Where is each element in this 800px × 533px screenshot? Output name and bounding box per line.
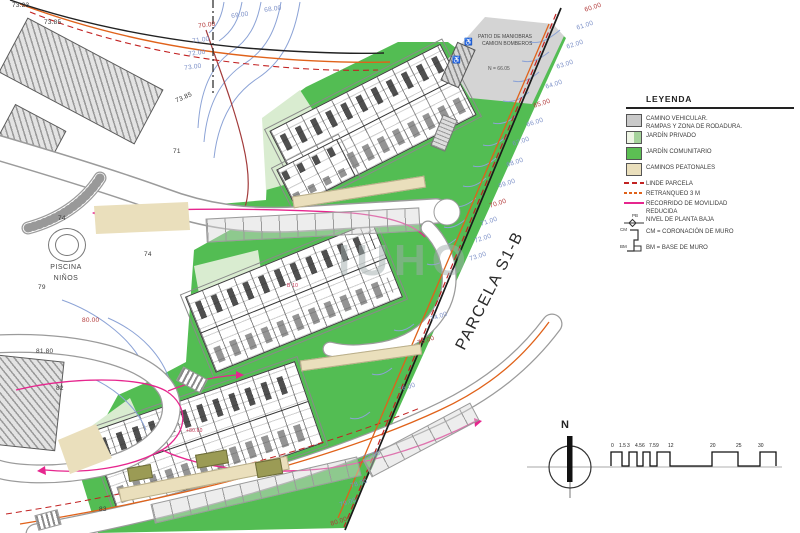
pool-label-line1: PISCINA <box>50 264 82 271</box>
legend-label: CAMINO VEHICULAR. <box>646 116 708 122</box>
scale-tick-label: 20 <box>710 444 716 449</box>
scale-tick-label: 12 <box>668 444 674 449</box>
pool-label: PISCINA NIÑOS <box>38 262 94 284</box>
contour-lines-major <box>206 30 248 218</box>
map-label: 64.00 <box>545 80 563 92</box>
wheelchair-icon: ♿ <box>464 38 473 46</box>
linde-line-swatch <box>624 182 644 184</box>
patio-label-line2: CAMION BOMBEROS <box>482 41 532 47</box>
legend-label: BM = BASE DE MURO <box>646 245 708 251</box>
scale-tick-label: 9 <box>656 444 659 449</box>
map-label: 71 <box>173 149 181 156</box>
children-pool-inner <box>55 234 79 256</box>
site-plan-canvas: ♿ ♿ IUHO PISCINA NIÑOS PARCELA S1-B PATI… <box>0 0 800 533</box>
scale-tick-label: 30 <box>758 444 764 449</box>
watermark: IUHO <box>338 236 472 286</box>
legend-label: RETRANQUEO 3 M <box>646 190 700 198</box>
legend-title: LEYENDA <box>646 94 692 104</box>
existing-building-topleft-wing <box>0 104 66 168</box>
road-swatch <box>626 114 642 127</box>
legend-label: REDUCIDA <box>646 209 677 215</box>
bm-symbol-label: BM <box>620 244 627 249</box>
north-label: N <box>561 419 569 431</box>
scale-tick-label: 4.5 <box>635 444 642 449</box>
crosswalk <box>34 509 61 531</box>
map-label: 72.00 <box>188 50 206 59</box>
compass <box>527 436 613 498</box>
legend-label: RECORRIDO DE MOVILIDAD <box>646 201 727 207</box>
cm-symbol-label: CM <box>620 227 627 232</box>
legend-label: LINDE PARCELA <box>646 180 693 188</box>
legend-rule <box>626 107 794 109</box>
patio-level-label: N = 66.05 <box>488 66 510 72</box>
existing-building-bottomleft <box>0 355 65 451</box>
legend-label: CAMINOS PEATONALES <box>646 164 715 172</box>
map-label: 73.85 <box>44 20 61 27</box>
wheelchair-icon: ♿ <box>452 56 461 64</box>
scale-tick-label: 7.5 <box>649 444 656 449</box>
scale-bar <box>611 452 782 467</box>
scale-tick-label: 0 <box>611 444 614 449</box>
retranqueo-line-swatch <box>624 192 644 194</box>
map-label: 70.00 <box>198 22 216 31</box>
scale-tick-label: 25 <box>736 444 742 449</box>
patio-label-line1: PATIO DE MANIOBRAS <box>478 34 532 40</box>
map-label: 74 <box>58 216 66 223</box>
legend-label: JARDÍN PRIVADO <box>646 132 696 140</box>
legend-label: RAMPAS Y ZONA DE RODADURA. <box>646 124 742 130</box>
map-label: 63.00 <box>556 60 574 72</box>
scale-tick-label: 1.5 <box>619 444 626 449</box>
map-label: 73.85 <box>175 92 193 105</box>
scale-tick-label: 6 <box>642 444 645 449</box>
map-label: 80.00 <box>82 318 99 325</box>
legend: LEYENDA CAMINO VEHICULAR. RAMPAS Y ZONA … <box>620 94 800 266</box>
legend-item-muro: CM BM CM = CORONACIÓN DE MURO BM = BASE … <box>620 227 800 257</box>
legend-label: NIVEL DE PLANTA BAJA <box>646 216 714 224</box>
map-label: 73.00 <box>184 64 202 73</box>
map-label: 73.23 <box>12 3 29 10</box>
map-label: 71.00 <box>192 37 210 46</box>
map-label: 79 <box>38 285 46 292</box>
legend-label: CM = CORONACIÓN DE MURO <box>646 229 734 235</box>
path-swatch <box>626 163 642 176</box>
map-label: 74 <box>144 252 152 259</box>
scale-tick-label: 3 <box>627 444 630 449</box>
map-label: 62.00 <box>566 40 584 52</box>
legend-label: JARDÍN COMUNITARIO <box>646 148 712 156</box>
pb-symbol-label: PB <box>632 213 638 218</box>
map-label: 81.80 <box>36 349 53 356</box>
map-label: 61.00 <box>576 21 594 33</box>
pool-label-line2: NIÑOS <box>54 275 79 282</box>
map-label: 69.00 <box>231 12 249 21</box>
private-garden-swatch <box>626 131 642 144</box>
map-label: 68.00 <box>264 6 282 15</box>
communal-garden-swatch <box>626 147 642 160</box>
movilidad-line-swatch <box>624 202 644 204</box>
map-label: 60.00 <box>584 3 602 15</box>
